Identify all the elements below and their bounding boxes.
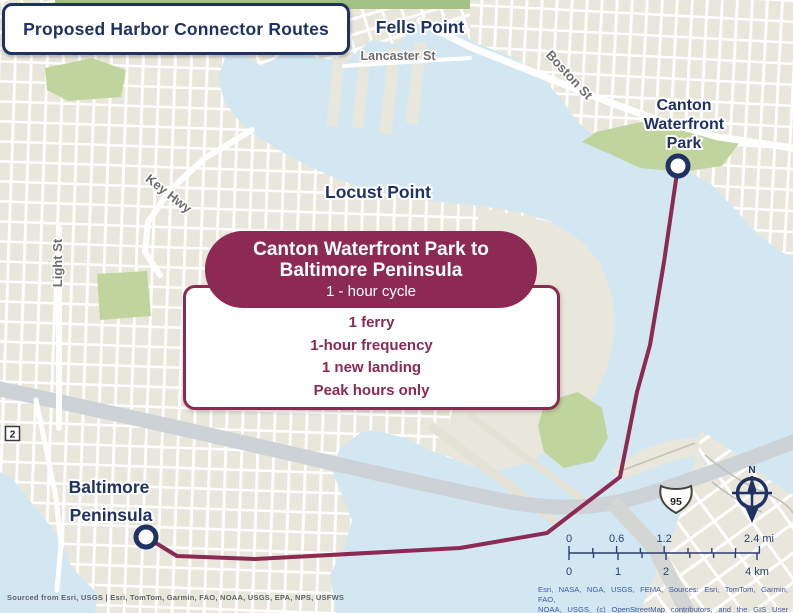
scale-km-2: 2 <box>663 566 669 578</box>
light-st-label: Light St <box>50 238 65 287</box>
route-callout-details: 1 ferry 1-hour frequency 1 new landing P… <box>183 312 560 402</box>
scale-km-1: 1 <box>615 566 621 578</box>
callout-detail-ferries: 1 ferry <box>183 312 560 335</box>
map-title-box: Proposed Harbor Connector Routes <box>2 3 350 55</box>
baltimore-peninsula-label-1: Baltimore <box>69 477 150 497</box>
callout-detail-frequency: 1-hour frequency <box>183 335 560 358</box>
attribution-right: Esri, NASA, NGA, USGS, FEMA, Sources: Es… <box>538 585 788 613</box>
scale-km-4: 4 km <box>745 566 769 578</box>
route-2-label: 2 <box>10 430 16 441</box>
callout-detail-landing: 1 new landing <box>183 357 560 380</box>
route-callout-header: Canton Waterfront Park to Baltimore Peni… <box>205 231 537 308</box>
compass-north-label: N <box>748 465 755 476</box>
riverside-park <box>97 271 151 320</box>
scale-mi-0: 0 <box>566 533 572 545</box>
canton-waterfront-park-marker[interactable] <box>668 156 688 176</box>
canton-park-label-2: Waterfront <box>644 116 725 133</box>
canton-park-label-3: Park <box>667 135 702 152</box>
scale-mi-12: 1.2 <box>657 533 672 545</box>
route-2-shield: 2 <box>6 427 20 441</box>
locust-point-label: Locust Point <box>325 182 431 202</box>
canton-park-label-1: Canton <box>656 97 711 114</box>
scale-km-0: 0 <box>566 566 572 578</box>
baltimore-peninsula-label-2: Peninsula <box>70 505 153 525</box>
callout-title-line1: Canton Waterfront Park to <box>253 239 489 260</box>
baltimore-peninsula-marker[interactable] <box>136 527 156 547</box>
callout-detail-hours: Peak hours only <box>183 380 560 403</box>
lancaster-st-label: Lancaster St <box>360 49 436 63</box>
attribution-right-line2: NOAA, USGS, (c) OpenStreetMap contributo… <box>538 605 788 613</box>
map-title: Proposed Harbor Connector Routes <box>23 19 329 40</box>
interstate-95-label: 95 <box>670 496 682 508</box>
fells-point-label: Fells Point <box>376 17 465 37</box>
harbor-connector-map[interactable]: 2 95 N <box>0 0 793 613</box>
attribution-right-line1: Esri, NASA, NGA, USGS, FEMA, Sources: Es… <box>538 585 788 605</box>
scale-mi-06: 0.6 <box>609 533 624 545</box>
callout-title-line2: Baltimore Peninsula <box>280 260 463 281</box>
callout-subtitle: 1 - hour cycle <box>326 282 416 301</box>
attribution-left: Sourced from Esri, USGS | Esri, TomTom, … <box>7 593 344 602</box>
scale-mi-24: 2.4 mi <box>744 533 774 545</box>
